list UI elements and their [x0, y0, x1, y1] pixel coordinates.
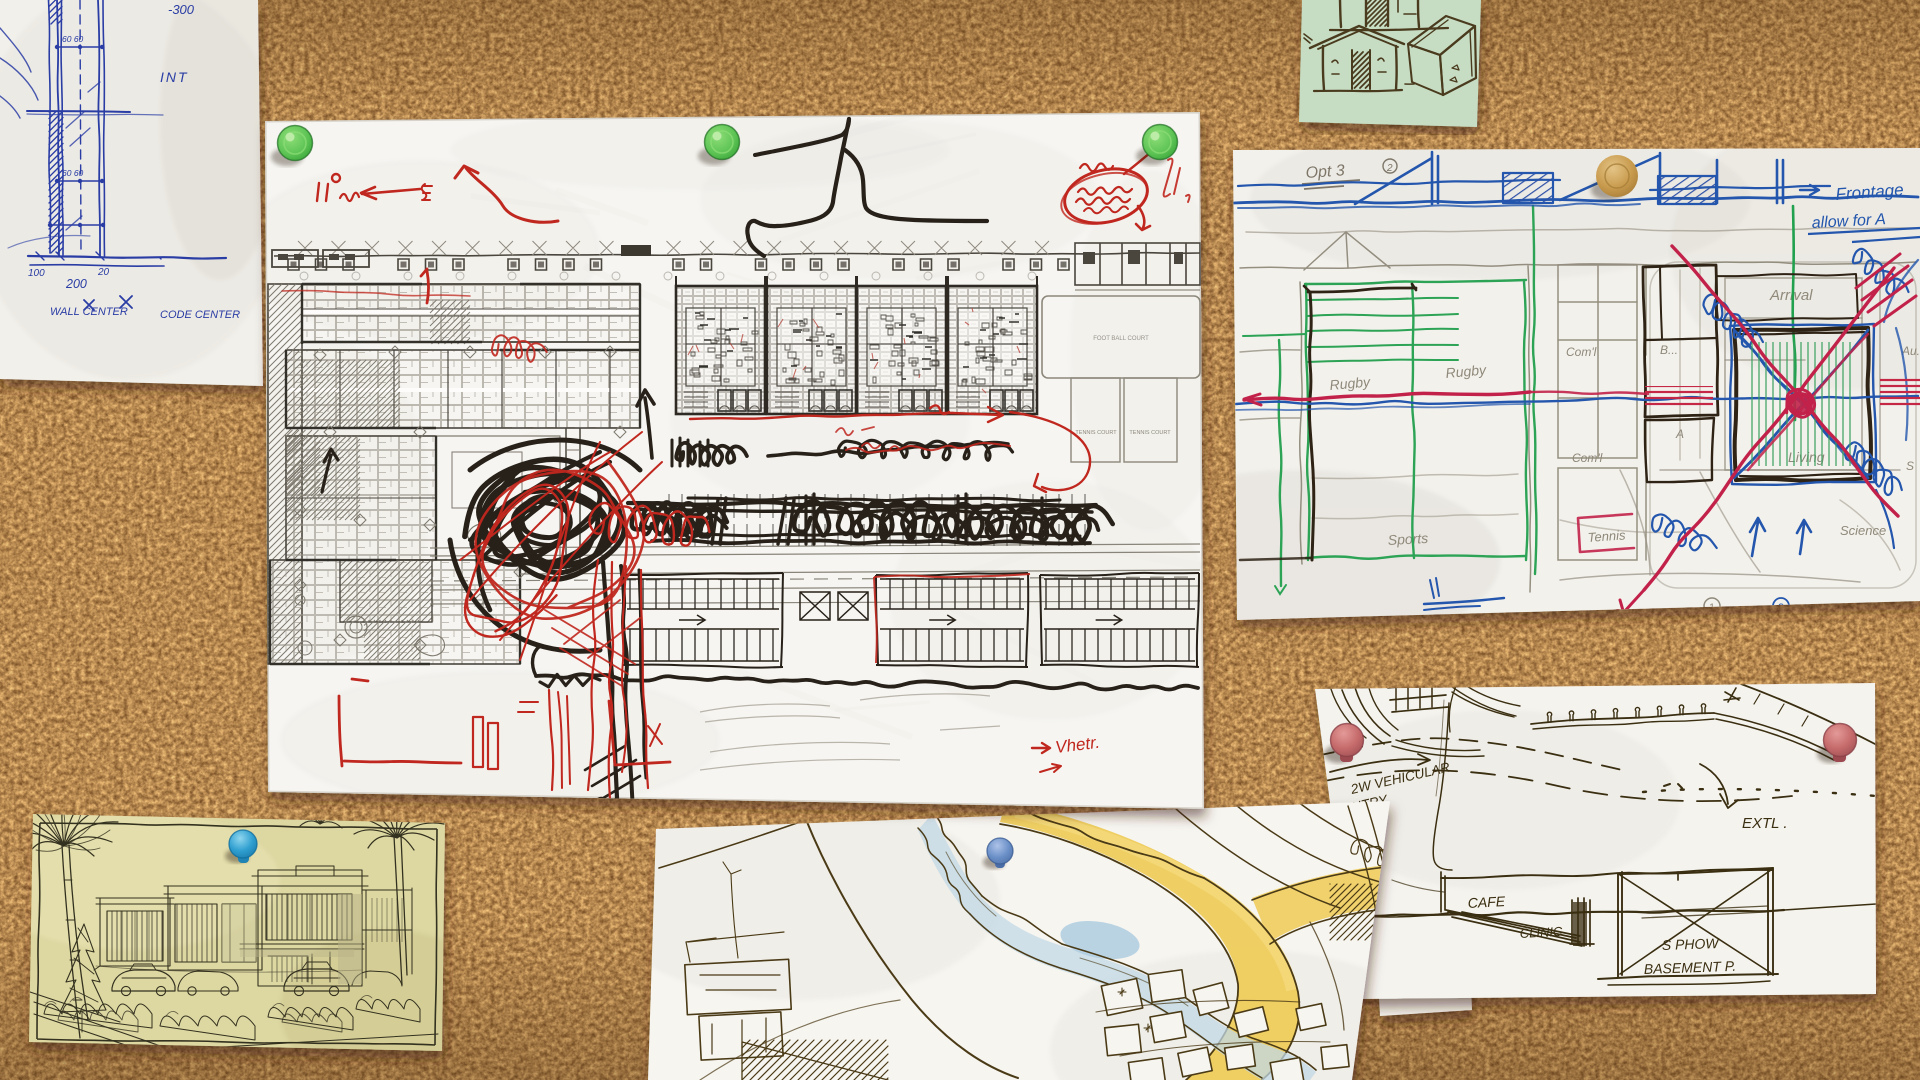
svg-text:Com'l: Com'l — [1572, 451, 1603, 465]
svg-text:BASEMENT P.: BASEMENT P. — [1644, 958, 1737, 977]
svg-text:-300: -300 — [168, 2, 195, 17]
svg-text:200: 200 — [65, 277, 87, 291]
svg-text:CODE CENTER: CODE CENTER — [160, 309, 240, 321]
svg-text:60 60: 60 60 — [62, 34, 84, 44]
svg-text:100: 100 — [28, 268, 45, 279]
svg-text:S PHOW: S PHOW — [1662, 935, 1721, 953]
svg-text:20: 20 — [97, 267, 110, 278]
svg-text:Science: Science — [1840, 523, 1886, 538]
svg-text:WALL CENTER: WALL CENTER — [50, 306, 128, 318]
svg-text:TENNIS COURT: TENNIS COURT — [1129, 430, 1171, 436]
svg-text:CAFE: CAFE — [1467, 893, 1506, 911]
svg-text:Sports: Sports — [1387, 530, 1428, 548]
svg-text:INT: INT — [160, 69, 189, 85]
svg-text:FOOT BALL COURT: FOOT BALL COURT — [1093, 336, 1149, 342]
svg-text:Tennis: Tennis — [1587, 527, 1626, 545]
svg-text:B...: B... — [1660, 343, 1678, 357]
svg-text:A: A — [1675, 427, 1684, 441]
svg-text:Arrival: Arrival — [1769, 287, 1813, 304]
svg-text:CLINIC: CLINIC — [1519, 924, 1563, 941]
svg-text:TENNIS COURT: TENNIS COURT — [1075, 430, 1117, 436]
svg-text:Com'l: Com'l — [1566, 345, 1597, 359]
svg-text:EXTL .: EXTL . — [1742, 815, 1788, 832]
svg-text:2: 2 — [1386, 163, 1393, 174]
svg-text:60 60: 60 60 — [62, 168, 84, 178]
svg-text:Opt 3: Opt 3 — [1305, 162, 1345, 182]
svg-text:S: S — [1906, 459, 1914, 473]
